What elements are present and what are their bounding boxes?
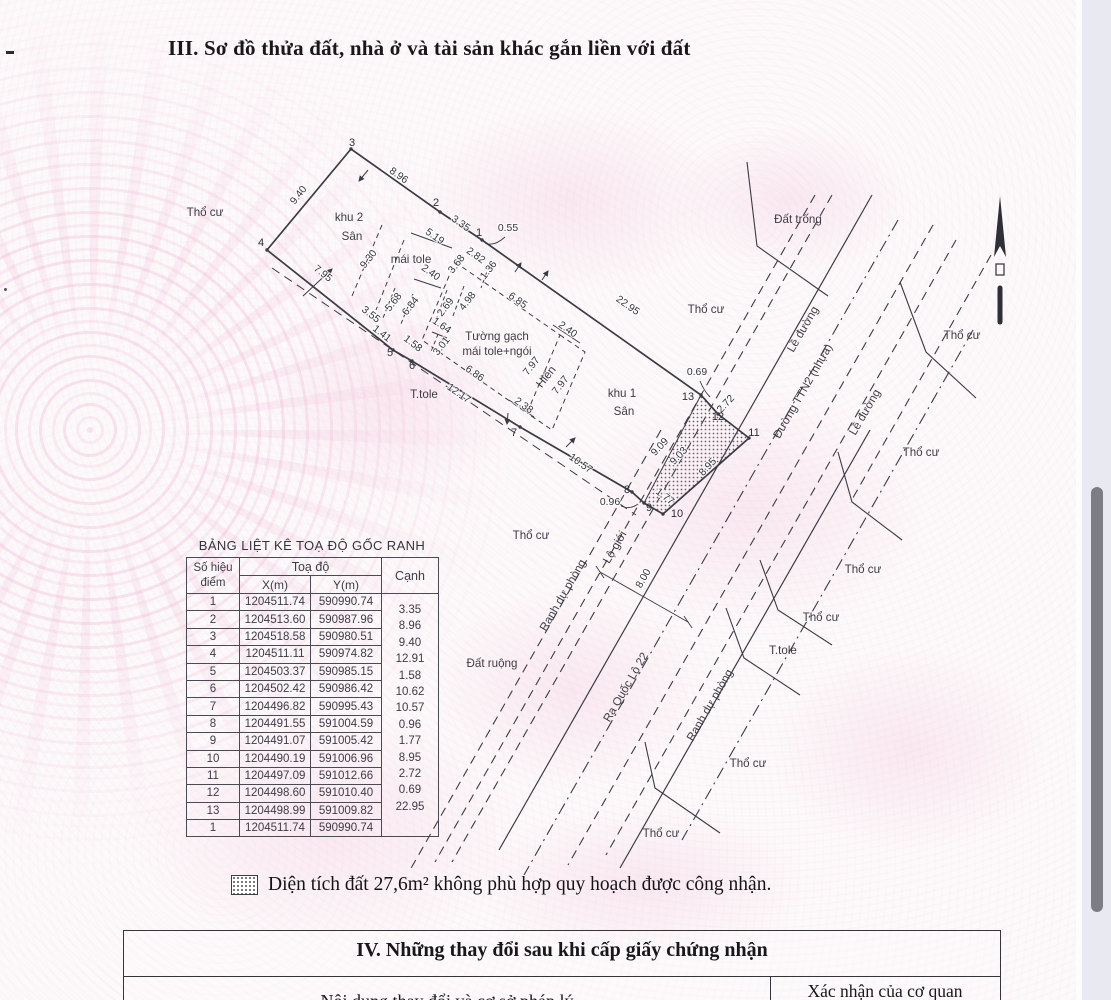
table-cell: 591006.96 (311, 750, 382, 767)
table-cell: 13 (187, 802, 240, 819)
map-dimension-label: 6.85 (506, 291, 529, 312)
table-cell: 9 (187, 733, 240, 750)
edge-length-value: 2.72 (382, 766, 438, 782)
legend-row: Diện tích đất 27,6m² không phù hợp quy h… (231, 874, 771, 896)
map-area-label: Lề đường (847, 387, 884, 438)
map-dimension-label: 3.55 (359, 304, 382, 325)
map-area-label: Thổ cư (845, 563, 882, 576)
table-cell: 590987.96 (311, 611, 382, 628)
edge-length-value: 1.77 (382, 733, 438, 749)
table-cell: 590974.82 (311, 646, 382, 663)
map-dimension-label: 1.58 (401, 333, 424, 354)
map-point-number: 8 (624, 484, 630, 496)
scanned-certificate-page: III. Sơ đồ thửa đất, nhà ở và tài sản kh… (0, 0, 1111, 1000)
map-area-label: T.tole (769, 644, 797, 657)
edge-length-value: 0.69 (382, 782, 438, 798)
map-point-number: 3 (349, 137, 355, 149)
table-cell: 590985.15 (311, 663, 382, 680)
map-area-label: Thổ cư (513, 529, 550, 542)
legend-note: Diện tích đất 27,6m² không phù hợp quy h… (268, 874, 771, 896)
table-cell: 3 (187, 628, 240, 645)
col-header-x: X(m) (240, 576, 311, 594)
map-area-label: Lộ giới (601, 529, 630, 566)
map-point-number: 10 (671, 508, 683, 520)
table-cell: 5 (187, 663, 240, 680)
map-area-label: khu 2 (335, 211, 363, 224)
map-dimension-label: 7.95 (311, 263, 334, 284)
map-area-label: Thổ cư (643, 827, 680, 840)
map-point-number: 9 (646, 502, 652, 514)
table-cell: 1204498.99 (240, 802, 311, 819)
section4-title: IV. Những thay đổi sau khi cấp giấy chứn… (124, 939, 1000, 962)
map-dimension-label: 9.09 (649, 436, 671, 458)
map-point-number: 1 (476, 227, 482, 239)
map-area-label: Thổ cư (803, 611, 840, 624)
map-dimension-label: 3.68 (446, 253, 467, 276)
road-lines (410, 195, 991, 875)
table-cell: 1204511.11 (240, 646, 311, 663)
edge-length-value: 3.35 (382, 602, 438, 618)
map-area-label: Ranh dự phòng (537, 557, 589, 633)
map-area-label: Ranh dự phòng (684, 667, 736, 743)
section4-rule (124, 976, 1000, 977)
map-dimension-label: 3.01 (431, 335, 452, 358)
map-area-label: Đất trống (774, 213, 822, 226)
table-cell: 10 (187, 750, 240, 767)
section4-col-right: Xác nhận của cơ quan (770, 981, 1000, 1000)
map-dimension-label: 4.98 (457, 290, 478, 313)
table-cell: 590995.43 (311, 698, 382, 715)
map-point-number: 2 (433, 197, 439, 209)
table-cell: 590990.74 (311, 594, 382, 611)
edge-length-value: 1.58 (382, 668, 438, 684)
edge-length-value: 10.62 (382, 684, 438, 700)
map-dimension-label: 9.30 (358, 248, 379, 271)
north-arrow-icon (994, 196, 1006, 322)
map-dimension-label: 1.64 (430, 316, 453, 337)
map-area-label: Thổ cư (187, 206, 224, 219)
map-point-number: 7 (511, 427, 517, 439)
table-cell: 1 (187, 594, 240, 611)
map-area-label: Tường gạch (465, 330, 529, 343)
map-dimension-label: 22.95 (614, 294, 642, 318)
edge-length-value: 22.95 (382, 799, 438, 815)
table-cell: 1204491.55 (240, 715, 311, 732)
map-area-label: Đất ruộng (467, 657, 518, 670)
table-cell: 1204503.37 (240, 663, 311, 680)
map-dimension-label: 10.57 (567, 452, 595, 476)
table-cell: 1204511.74 (240, 820, 311, 837)
table-cell: 1204518.58 (240, 628, 311, 645)
section4-box: IV. Những thay đổi sau khi cấp giấy chứn… (123, 930, 1001, 1000)
col-header-coord: Toạ độ (240, 558, 382, 576)
table-cell: 1204502.42 (240, 680, 311, 697)
map-area-label: Sân (614, 405, 635, 418)
table-cell: 591005.42 (311, 733, 382, 750)
map-point-number: 6 (409, 360, 415, 372)
map-area-label: khu 1 (608, 387, 636, 400)
edge-length-value: 9.40 (382, 635, 438, 651)
map-area-label: Lề đường (785, 304, 822, 355)
table-cell: 7 (187, 698, 240, 715)
map-dimension-label: 8.00 (634, 567, 654, 590)
table-cell: 1 (187, 820, 240, 837)
table-cell: 8 (187, 715, 240, 732)
table-cell: 590986.42 (311, 680, 382, 697)
table-cell: 1204497.09 (240, 767, 311, 784)
map-area-label: Thổ cư (688, 303, 725, 316)
col-header-point: Số hiệuđiểm (187, 558, 240, 594)
edge-length-value: 12.91 (382, 651, 438, 667)
table-cell: 1204490.19 (240, 750, 311, 767)
section4-col-left: Nội dung thay đổi và cơ sở pháp lý (124, 991, 770, 1000)
map-point-number: 11 (748, 427, 759, 439)
map-dimension-label: 12.17 (445, 382, 473, 406)
map-dimension-label: 0.96 (600, 497, 620, 508)
edge-length-value: 0.96 (382, 717, 438, 733)
coordinate-table-title: BẢNG LIỆT KÊ TOẠ ĐỘ GỐC RANH (186, 538, 438, 553)
table-cell: 12 (187, 785, 240, 802)
table-cell: 591009.82 (311, 802, 382, 819)
table-cell: 590980.51 (311, 628, 382, 645)
map-area-label: Thổ cư (730, 757, 767, 770)
map-point-number: 13 (682, 391, 694, 403)
map-dimension-label: 0.55 (498, 223, 518, 234)
cadastral-map: Thổ cưkhu 2Sânmái toleTường gạchmái tole… (0, 0, 1111, 1000)
map-area-label: Ra Quốc Lộ 22 (601, 650, 651, 724)
table-cell: 11 (187, 767, 240, 784)
table-cell: 591010.40 (311, 785, 382, 802)
table-cell: 4 (187, 646, 240, 663)
edge-length-column: 3.358.969.4012.911.5810.6210.570.961.778… (382, 594, 439, 837)
table-cell: 591004.59 (311, 715, 382, 732)
scrollbar-thumb[interactable] (1091, 487, 1103, 912)
table-cell: 2 (187, 611, 240, 628)
table-cell: 1204496.82 (240, 698, 311, 715)
table-cell: 1204498.60 (240, 785, 311, 802)
col-header-y: Y(m) (311, 576, 382, 594)
edge-length-value: 8.95 (382, 750, 438, 766)
map-point-number: 4 (258, 237, 264, 249)
table-cell: 1204491.07 (240, 733, 311, 750)
map-area-label: Thổ cư (903, 446, 940, 459)
edge-length-value: 8.96 (382, 618, 438, 634)
coordinate-table: Số hiệuđiểm Toạ độ Cạnh X(m) Y(m) 112045… (186, 557, 439, 837)
map-point-number: 12 (712, 411, 724, 423)
edge-length-value: 10.57 (382, 700, 438, 716)
map-area-label: mái tole+ngói (462, 345, 531, 358)
map-point-number: 5 (387, 347, 393, 359)
table-cell: 1204511.74 (240, 594, 311, 611)
table-cell: 590990.74 (311, 820, 382, 837)
map-dimension-label: 2.40 (419, 263, 442, 284)
map-dimension-label: 0.69 (687, 367, 707, 378)
map-area-label: Sân (342, 230, 363, 243)
map-dimension-label: 2.82 (464, 246, 487, 267)
map-area-label: T.tole (410, 388, 438, 401)
table-cell: 6 (187, 680, 240, 697)
table-cell: 1204513.60 (240, 611, 311, 628)
table-row: 11204511.74590990.743.358.969.4012.911.5… (187, 594, 439, 611)
table-cell: 591012.66 (311, 767, 382, 784)
map-area-label: Thổ cư (944, 329, 981, 342)
hatch-legend-icon (231, 875, 258, 895)
map-dimension-label: 6.86 (463, 364, 486, 385)
col-header-edge: Cạnh (382, 558, 439, 594)
map-dimension-label: 2.38 (512, 396, 535, 417)
coordinate-table-block: BẢNG LIỆT KÊ TOẠ ĐỘ GỐC RANH Số hiệuđiểm… (186, 538, 446, 837)
